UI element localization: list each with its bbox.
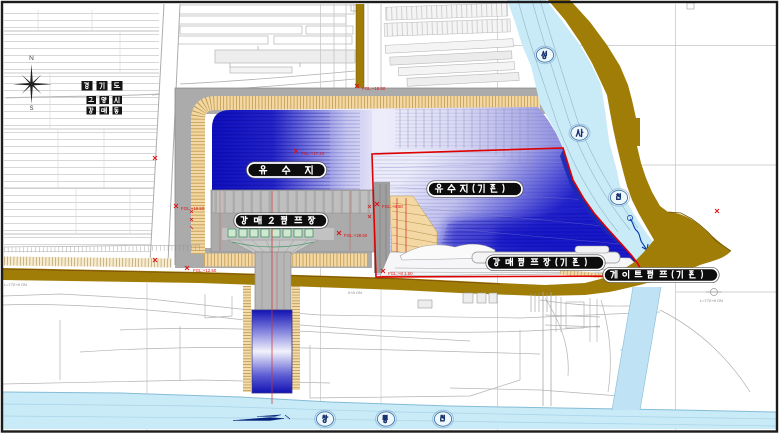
svg-text:L=770+8 ON: L=770+8 ON bbox=[4, 282, 27, 287]
svg-text:S: S bbox=[29, 106, 33, 112]
svg-text:FGL:+17.20: FGL:+17.20 bbox=[301, 151, 325, 156]
svg-text:FGL:+8 1.60: FGL:+8 1.60 bbox=[388, 271, 413, 276]
svg-text:FGL:+28.50: FGL:+28.50 bbox=[344, 233, 368, 238]
svg-text:FGL:+18.50: FGL:+18.50 bbox=[362, 86, 386, 91]
svg-text:0+8 ON: 0+8 ON bbox=[348, 290, 362, 295]
svg-text:N: N bbox=[29, 55, 34, 62]
svg-text:L=770+8 ON: L=770+8 ON bbox=[700, 298, 723, 303]
svg-text:FGL:+12.50: FGL:+12.50 bbox=[193, 268, 217, 273]
svg-text:FGL:+8.50: FGL:+8.50 bbox=[382, 204, 403, 209]
